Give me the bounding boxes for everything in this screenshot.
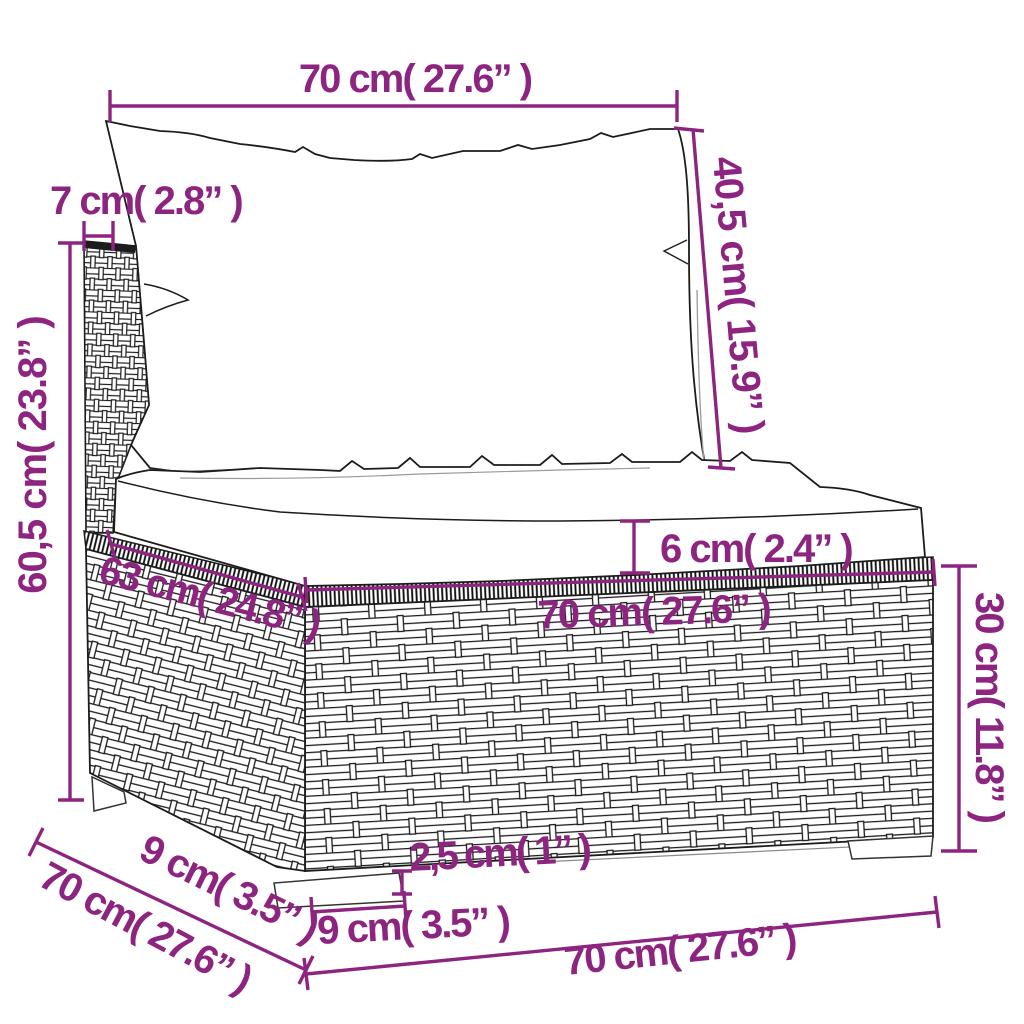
svg-text:7 cm( 2.8” ): 7 cm( 2.8” ) (50, 179, 242, 223)
svg-text:6 cm( 2.4” ): 6 cm( 2.4” ) (660, 527, 852, 571)
svg-text:70 cm( 27.6” ): 70 cm( 27.6” ) (537, 586, 771, 637)
svg-text:70 cm( 27.6” ): 70 cm( 27.6” ) (299, 57, 532, 101)
svg-text:30 cm( 11.8” ): 30 cm( 11.8” ) (967, 592, 1011, 823)
svg-text:60,5 cm( 23.8” ): 60,5 cm( 23.8” ) (11, 316, 55, 594)
